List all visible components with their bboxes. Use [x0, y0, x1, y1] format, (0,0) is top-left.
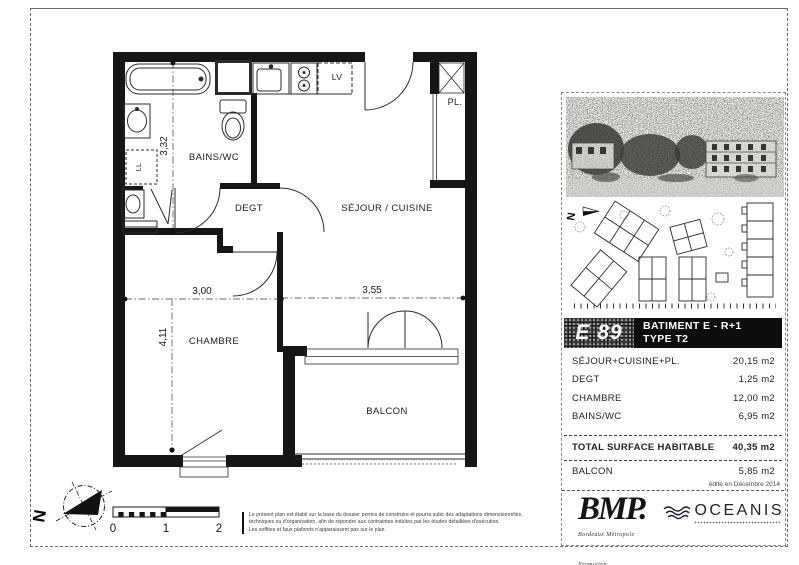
plan-sheet: 3,32 4,11 3,00 3,55 BAINS/WC DEGT SÉJOUR… [0, 0, 799, 565]
dimension-3-55: 3,55 [362, 285, 382, 296]
oceanis-tagline [694, 521, 780, 524]
site-photo [566, 97, 784, 197]
degt-sejour-door [280, 188, 324, 232]
bmp-tagline: Bordeaux Métropole Promotion [578, 520, 663, 565]
table-row: SÉJOUR+CUISINE+PL. 20,15 m2 [564, 352, 782, 371]
scale-label-0: 0 [110, 523, 116, 535]
dimension-3-00: 3,00 [192, 286, 212, 297]
edition-note: édité en Décembre 2014 [630, 481, 780, 488]
oceanis-text: OCEANIS [694, 502, 784, 524]
bains-door [175, 188, 220, 233]
balcony-label: BALCON [572, 467, 613, 477]
waves-icon [663, 504, 691, 522]
row-value: 1,25 m2 [739, 375, 775, 385]
row-value: 20,15 m2 [733, 357, 775, 367]
disclaimer-line: Les soffites et faux plafonds n'apparais… [249, 527, 579, 534]
row-value: 12,00 m2 [733, 394, 775, 404]
disclaimer: Le présent plan est établi sur la base d… [242, 512, 579, 534]
bathtub [126, 64, 210, 94]
kitchen-sink [253, 63, 289, 94]
scale-bar: 0 1 2 [110, 507, 222, 535]
row-label: SÉJOUR+CUISINE+PL. [572, 357, 680, 367]
toilet [220, 100, 246, 140]
compass-rose: N [29, 482, 112, 530]
total-value: 40,35 m2 [732, 443, 775, 453]
disclaimer-line: Le présent plan est établi sur la base d… [249, 512, 579, 519]
disclaimer-line: techniques ou d'organisation, afin de ré… [249, 519, 579, 526]
bmp-logo: BMP. Bordeaux Métropole Promotion [578, 494, 663, 565]
oceanis-logo: OCEANIS [663, 502, 784, 524]
table-row: BAINS/WC 6,95 m2 [564, 408, 782, 427]
room-label-balcon: BALCON [366, 406, 407, 417]
label-dishwasher: LV [332, 72, 343, 82]
washbasin [124, 104, 150, 138]
oceanis-name: OCEANIS [694, 502, 784, 520]
room-label-bains: BAINS/WC [189, 152, 239, 163]
floor-plan: 3,32 4,11 3,00 3,55 BAINS/WC DEGT SÉJOUR… [0, 0, 560, 565]
site-plan: N [566, 197, 784, 312]
walls [113, 52, 477, 467]
table-separator [564, 460, 782, 461]
shower-duct [217, 62, 251, 94]
room-label-placard: PL. [448, 97, 463, 107]
unit-code: E 89 [575, 321, 622, 345]
total-row: TOTAL SURFACE HABITABLE 40,35 m2 [564, 438, 782, 457]
chambre-door [233, 252, 277, 296]
row-label: CHAMBRE [572, 394, 622, 404]
building-line1: BATIMENT E - R+1 [643, 320, 782, 333]
row-value: 6,95 m2 [739, 412, 775, 422]
room-label-degt: DEGT [235, 203, 263, 214]
chambre-window [180, 430, 228, 477]
room-label-sejour: SÉJOUR / CUISINE [341, 203, 432, 214]
label-washing-machine: LL [136, 163, 143, 172]
entrance-door [365, 62, 413, 110]
compass-needle [63, 490, 102, 515]
unit-code-badge: E 89 [564, 318, 634, 348]
table-row: CHAMBRE 12,00 m2 [564, 389, 782, 408]
balcony-railing [295, 454, 465, 464]
scale-label-2: 2 [216, 523, 222, 535]
table-row: DEGT 1,25 m2 [564, 371, 782, 390]
hob [291, 63, 317, 94]
north-letter: N [29, 508, 50, 523]
balcony-row: BALCON 5,85 m2 [564, 463, 782, 482]
building-banner: E 89 BATIMENT E - R+1 TYPE T2 [564, 318, 782, 348]
hand-basin [122, 189, 172, 224]
row-label: BAINS/WC [572, 412, 621, 422]
building-line2: TYPE T2 [643, 333, 782, 346]
surface-table: SÉJOUR+CUISINE+PL. 20,15 m2 DEGT 1,25 m2… [564, 352, 782, 481]
french-doors [305, 311, 458, 364]
room-label-chambre: CHAMBRE [189, 336, 239, 347]
balcony-value: 5,85 m2 [739, 467, 775, 477]
table-separator [564, 435, 782, 436]
row-label: DEGT [572, 375, 600, 385]
dimension-3-32: 3,32 [159, 136, 170, 156]
dimension-4-11: 4,11 [158, 327, 169, 346]
logos-row: BMP. Bordeaux Métropole Promotion OCEANI… [578, 494, 784, 540]
total-label: TOTAL SURFACE HABITABLE [572, 443, 714, 453]
scale-label-1: 1 [163, 523, 169, 535]
building-info: BATIMENT E - R+1 TYPE T2 [634, 318, 782, 348]
